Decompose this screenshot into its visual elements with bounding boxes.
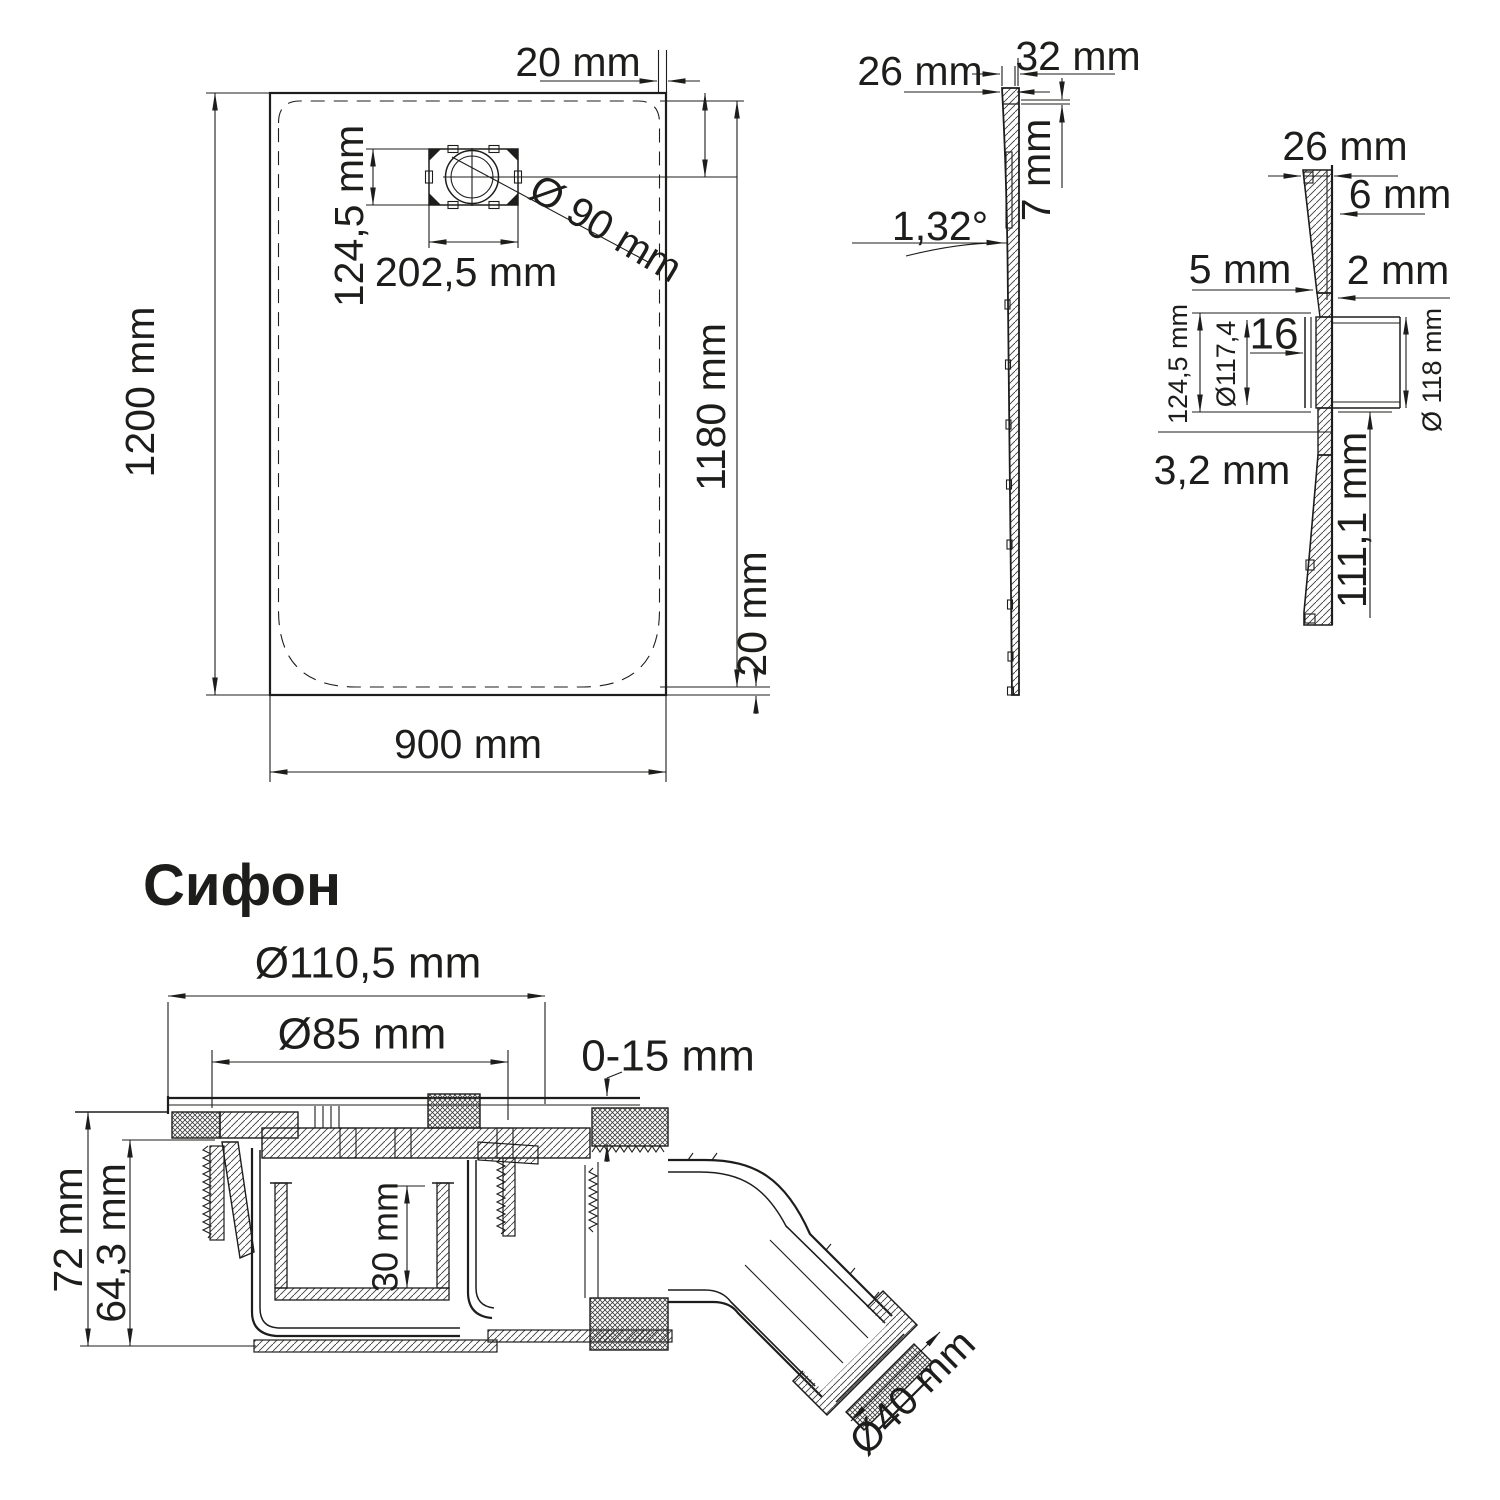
dim-label-detail-recess: 16 (1250, 310, 1299, 359)
inner-cup-left-wall (275, 1183, 287, 1288)
height-adjust-thread (210, 1146, 224, 1240)
dim-label-detail-inner-diameter: Ø117,4 (1211, 321, 1241, 408)
left-clamp-bolt (172, 1112, 220, 1138)
detail-sleeve-wall (1316, 317, 1332, 408)
dim-label-siphon-grate-diameter: Ø85 mm (278, 1010, 447, 1059)
dim-label-bottom-offset: 20 mm (729, 551, 775, 676)
dim-label-length: 1200 mm (117, 307, 163, 478)
dim-label-detail-lip: 6 mm (1349, 171, 1452, 217)
dim-label-detail-wall: 2 mm (1347, 247, 1450, 293)
dim-label-detail-outer-diameter: Ø 118 mm (1417, 308, 1447, 432)
dim-detail-wall: 2 mm (1338, 247, 1450, 298)
right-outlet-nut (592, 1108, 668, 1146)
dim-label-inner-length: 1180 mm (688, 323, 734, 491)
dim-label-profile-top-width: 32 mm (1015, 33, 1140, 79)
outlet-lock-nut (590, 1298, 668, 1350)
dim-label-profile-angle: 1,32° (892, 203, 988, 249)
inner-cup-right-wall (437, 1183, 449, 1288)
drawing-canvas: 20 mm 124,5 mm 202,5 mm Ø 90 mm 1200 mm (0, 0, 1500, 1500)
dim-label-siphon-body-height: 64,3 mm (88, 1163, 134, 1323)
dim-detail-lip: 6 mm (1340, 171, 1451, 217)
inner-cup-bottom (275, 1288, 449, 1300)
dim-label-profile-edge: 26 mm (857, 48, 982, 94)
dim-label-detail-body-height: 111,1 mm (1329, 432, 1375, 608)
dim-label-detail-step: 5 mm (1189, 246, 1292, 292)
dim-label-drain-width: 202,5 mm (375, 249, 557, 295)
dim-label-detail-bottom-thickness: 3,2 mm (1154, 447, 1291, 493)
bottom-plate-left (254, 1340, 497, 1352)
dim-label-siphon-water-seal: 30 mm (365, 1182, 406, 1292)
dim-label-detail-flange-height: 124,5 mm (1163, 304, 1193, 424)
dim-label-drain-height: 124,5 mm (326, 125, 372, 307)
dim-label-siphon-adjust-range: 0-15 mm (581, 1032, 755, 1081)
dim-label-detail-edge: 26 mm (1282, 123, 1407, 169)
dim-detail-recess: 16 (1250, 310, 1303, 359)
dim-label-siphon-flange-diameter: Ø110,5 mm (255, 939, 482, 988)
grate-support-bar (262, 1128, 590, 1158)
siphon-heading: Сифон (143, 853, 341, 918)
dim-label-profile-rim: 7 mm (1013, 119, 1059, 222)
technical-drawing-page: 20 mm 124,5 mm 202,5 mm Ø 90 mm 1200 mm (0, 0, 1500, 1500)
dim-detail-edge: 26 mm (1268, 123, 1408, 176)
grate-center-block (428, 1094, 480, 1128)
dim-label-width: 900 mm (394, 721, 542, 767)
dim-label-siphon-total-height: 72 mm (45, 1167, 91, 1292)
dim-label-top-offset: 20 mm (515, 39, 640, 85)
